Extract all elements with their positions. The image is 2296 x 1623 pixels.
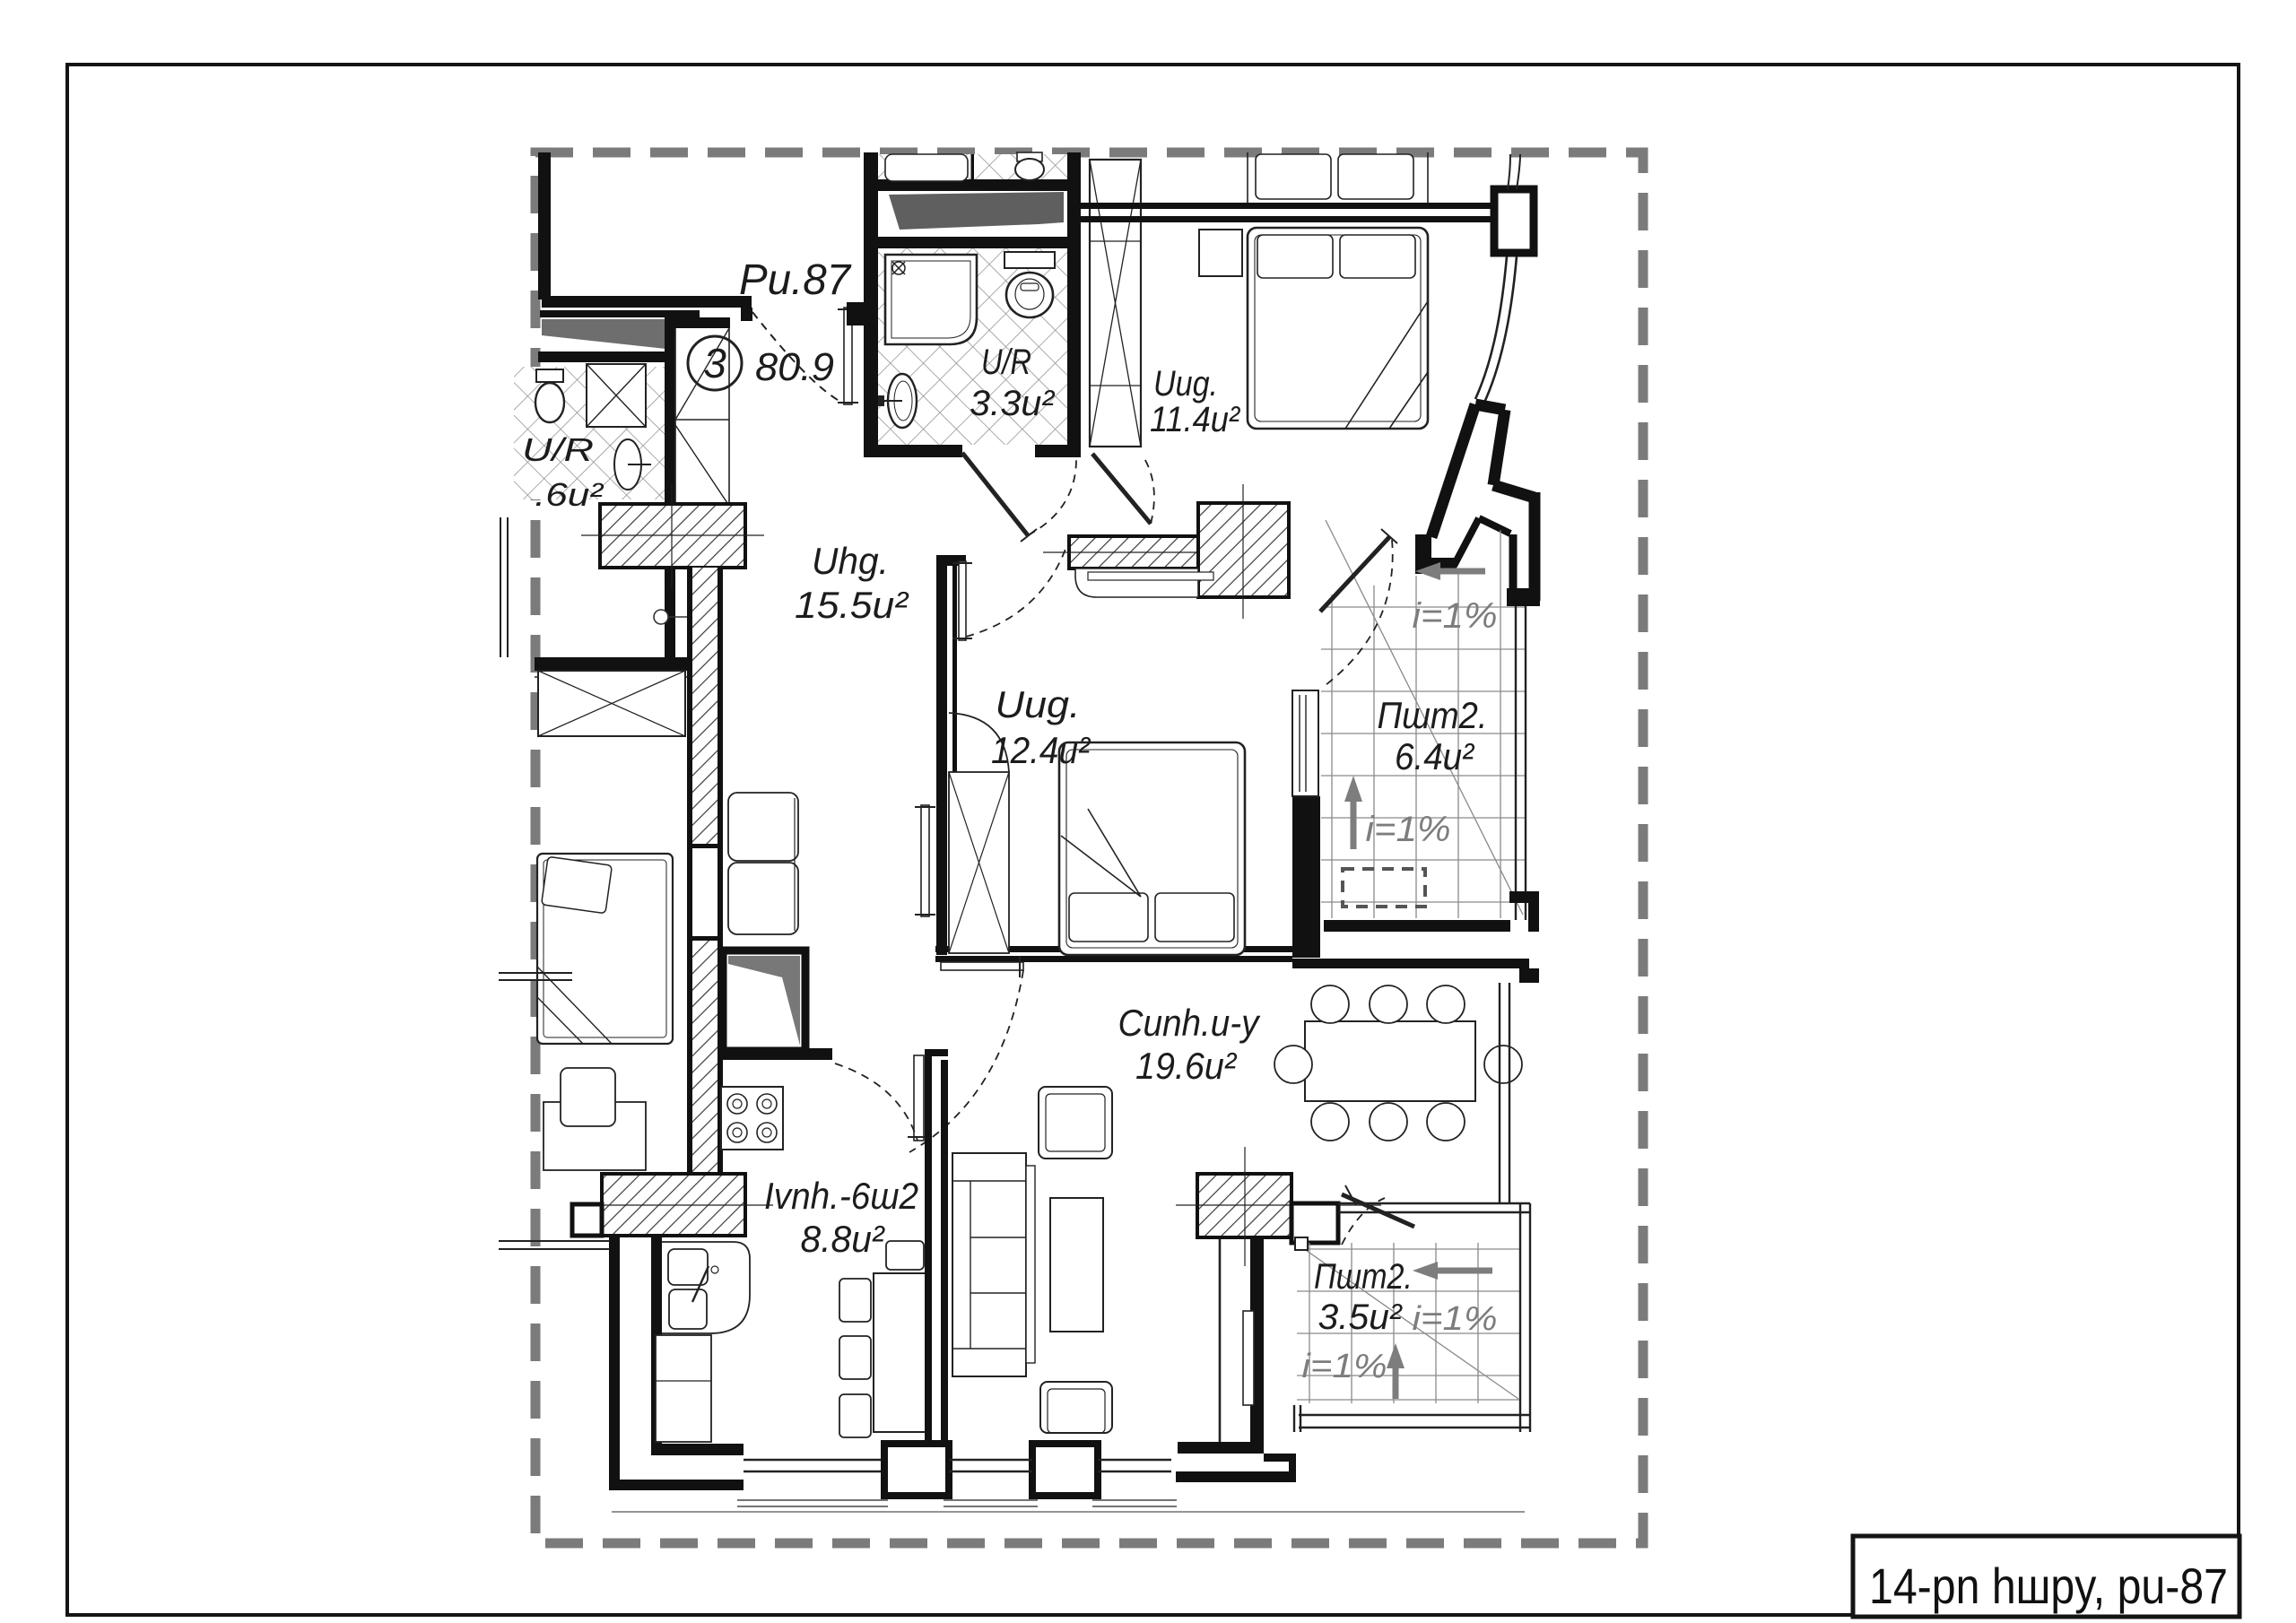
svg-text:Пшm2.: Пшm2. bbox=[1314, 1257, 1413, 1297]
svg-text:U/R: U/R bbox=[981, 343, 1031, 382]
svg-text:i=1%: i=1% bbox=[1413, 596, 1498, 636]
svg-text:i=1%: i=1% bbox=[1302, 1348, 1387, 1385]
svg-text:3.5u²: 3.5u² bbox=[1318, 1298, 1404, 1337]
svg-text:3: 3 bbox=[703, 340, 726, 386]
svg-text:i=1%: i=1% bbox=[1413, 1300, 1498, 1338]
svg-text:Pu.87: Pu.87 bbox=[739, 256, 852, 304]
svg-text:8.8u²: 8.8u² bbox=[801, 1218, 886, 1260]
svg-text:15.5u²: 15.5u² bbox=[795, 584, 909, 626]
svg-text:Ivnh.-6ш2: Ivnh.-6ш2 bbox=[764, 1175, 918, 1217]
svg-text:12.4u²: 12.4u² bbox=[991, 729, 1091, 771]
svg-text:Uhg.: Uhg. bbox=[812, 540, 889, 582]
svg-text:Uug.: Uug. bbox=[996, 683, 1081, 725]
svg-text:19.6u²: 19.6u² bbox=[1135, 1045, 1238, 1087]
svg-text:6.4u²: 6.4u² bbox=[1395, 735, 1475, 777]
svg-text:Пшm2.: Пшm2. bbox=[1378, 694, 1488, 736]
svg-text:Uug.: Uug. bbox=[1153, 364, 1218, 404]
svg-text:3.3u²: 3.3u² bbox=[970, 384, 1056, 423]
svg-text:.6u²: .6u² bbox=[535, 476, 604, 513]
svg-text:11.4u²: 11.4u² bbox=[1150, 400, 1241, 439]
svg-text:i=1%: i=1% bbox=[1366, 810, 1451, 849]
svg-text:U/R: U/R bbox=[522, 431, 594, 468]
svg-text:80.9: 80.9 bbox=[755, 345, 834, 389]
svg-text:14-pn hшpy, pu-87: 14-pn hшpy, pu-87 bbox=[1869, 1558, 2228, 1614]
svg-text:Cunh.u-y: Cunh.u-y bbox=[1118, 1002, 1262, 1044]
